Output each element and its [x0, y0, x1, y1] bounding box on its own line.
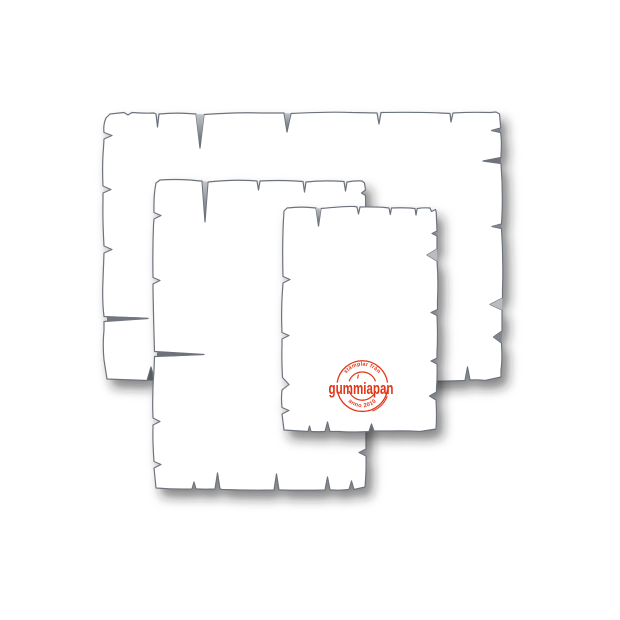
- svg-text:gummiapan: gummiapan: [329, 379, 394, 398]
